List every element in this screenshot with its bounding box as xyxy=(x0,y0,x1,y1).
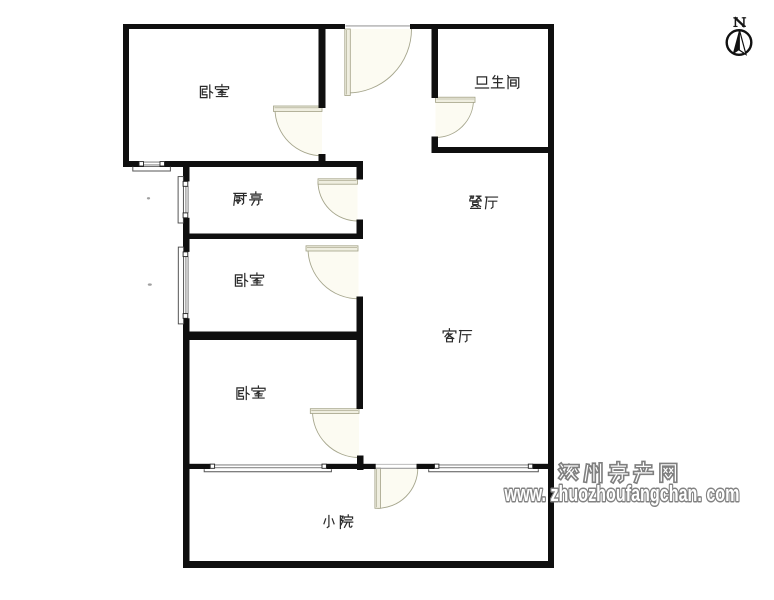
svg-text:www. zhuozhoufangchan. com: www. zhuozhoufangchan. com xyxy=(504,481,740,506)
